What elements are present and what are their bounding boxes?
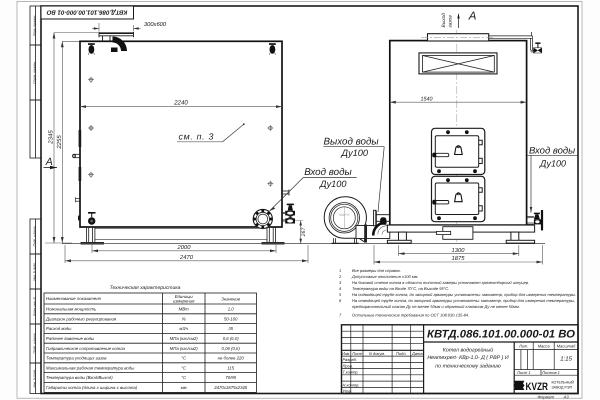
- svg-text:2000: 2000: [177, 244, 192, 251]
- svg-text:см. п. 3: см. п. 3: [179, 132, 215, 142]
- svg-text:А3: А3: [563, 395, 570, 400]
- svg-text:267: 267: [301, 227, 307, 238]
- svg-text:Допустимые отклонения ±100 мм: Допустимые отклонения ±100 мм.: [351, 274, 418, 279]
- svg-text:Лист 1: Лист 1: [516, 370, 531, 375]
- svg-text:Перв. примен.: Перв. примен.: [32, 15, 36, 36]
- svg-text:1875: 1875: [452, 255, 466, 262]
- svg-text:Взам. инв. N: Взам. инв. N: [32, 297, 36, 316]
- svg-text:35: 35: [228, 326, 233, 331]
- svg-text:Инв. N подл.: Инв. N подл.: [32, 369, 36, 388]
- svg-text:1: 1: [339, 268, 341, 273]
- svg-text:Вход воды: Вход воды: [304, 167, 352, 178]
- svg-text:Инв. N дубл.: Инв. N дубл.: [32, 262, 36, 281]
- svg-text:Листов 1: Листов 1: [541, 370, 560, 375]
- svg-text:Изм: Изм: [342, 351, 350, 356]
- svg-text:На боковой стенке котла в обла: На боковой стенке котла в области топочн…: [352, 280, 529, 285]
- svg-text:КВТД.086.101.00.000-01 ВО: КВТД.086.101.00.000-01 ВО: [427, 328, 575, 340]
- svg-text:А: А: [468, 11, 477, 23]
- svg-text:Лист: Лист: [351, 351, 363, 356]
- svg-text:Максимальная рабочая температу: Максимальная рабочая температура воды: [46, 365, 135, 370]
- svg-text:Остальные технические требован: Остальные технические требования по ОСТ …: [352, 313, 469, 318]
- svg-text:КВТД.086.101.00.000-01 ВО: КВТД.086.101.00.000-01 ВО: [46, 9, 127, 16]
- svg-text:Лит.: Лит.: [518, 344, 528, 349]
- svg-text:Выход воды: Выход воды: [324, 136, 380, 147]
- svg-text:измерения: измерения: [173, 299, 195, 304]
- svg-text:МВт: МВт: [179, 307, 189, 312]
- svg-text:2470х1875х2345: 2470х1875х2345: [213, 385, 248, 390]
- svg-text:Утв.: Утв.: [343, 388, 352, 393]
- svg-text:газов: газов: [448, 15, 453, 28]
- svg-text:Котел водогрейный: Котел водогрейный: [443, 347, 493, 353]
- svg-text:1540: 1540: [421, 97, 433, 103]
- svg-text:Номинальная мощность: Номинальная мощность: [46, 307, 97, 312]
- svg-text:Температура воды на Входе 70°: Температура воды на Входе 70°С, на Выход…: [352, 286, 449, 291]
- svg-text:Ду100: Ду100: [539, 159, 566, 169]
- svg-text:Рабочее давление воды: Рабочее давление воды: [46, 336, 95, 341]
- svg-text:Дата: Дата: [411, 351, 423, 356]
- svg-text:Ду100: Ду100: [341, 148, 369, 158]
- svg-text:ВЦ14-46: ВЦ14-46: [339, 214, 350, 217]
- svg-text:не более 220: не более 220: [218, 356, 245, 361]
- svg-text:по техническому заданию: по техническому заданию: [435, 364, 500, 370]
- svg-text:Т.контр.: Т.контр.: [343, 370, 359, 375]
- svg-text:Выход: Выход: [441, 13, 447, 28]
- svg-text:Пров.: Пров.: [343, 363, 354, 368]
- svg-text:50-100: 50-100: [224, 316, 238, 321]
- svg-text:2470: 2470: [179, 254, 194, 261]
- svg-text:Значение: Значение: [221, 297, 240, 302]
- svg-text:300х600: 300х600: [144, 21, 167, 28]
- svg-text:Справ. примен.: Справ. примен.: [32, 61, 36, 84]
- svg-text:Подп. и дата: Подп. и дата: [32, 333, 36, 353]
- svg-text:2255: 2255: [56, 135, 63, 150]
- svg-text:Гидравлическое сопротивление к: Гидравлическое сопротивление котла: [46, 346, 126, 351]
- svg-text:1300: 1300: [452, 247, 466, 254]
- svg-text:ЗАВОД РЭП: ЗАВОД РЭП: [552, 386, 573, 390]
- svg-text:Неатехреrt- КВр-1,0- Д ( РВР ): Неатехреrt- КВр-1,0- Д ( РВР ) И: [427, 355, 509, 361]
- svg-text:МПа (кгс/см2): МПа (кгс/см2): [170, 336, 199, 341]
- svg-text:Разраб.: Разраб.: [343, 357, 357, 362]
- svg-text:115: 115: [227, 365, 234, 370]
- svg-text:КОТЕЛЬНЫЙ: КОТЕЛЬНЫЙ: [552, 380, 575, 385]
- svg-text:Формат: Формат: [538, 395, 555, 400]
- svg-text:Расход воды: Расход воды: [46, 326, 72, 331]
- svg-text:2345: 2345: [48, 130, 55, 145]
- svg-text:Вход воды: Вход воды: [529, 146, 575, 157]
- svg-text:Ду100: Ду100: [319, 179, 347, 189]
- svg-text:KVZR: KVZR: [526, 381, 549, 393]
- svg-text:м3/ч: м3/ч: [179, 326, 189, 331]
- svg-text:N докум.: N докум.: [369, 351, 385, 356]
- svg-text:0,6 (6,0): 0,6 (6,0): [223, 336, 240, 341]
- svg-text:%: %: [182, 316, 186, 321]
- svg-text:Масштаб: Масштаб: [557, 344, 576, 349]
- svg-text:Масса: Масса: [538, 344, 551, 349]
- svg-text:1:15: 1:15: [560, 356, 572, 363]
- svg-text:Н.контр.: Н.контр.: [343, 382, 360, 387]
- svg-text:Диапазон рабочего регулировани: Диапазон рабочего регулирования: [45, 316, 117, 321]
- svg-text:Наименование показателя: Наименование показателя: [46, 296, 102, 301]
- svg-text:Габариты котла (длина х ширина: Габариты котла (длина х ширина х высота): [46, 385, 138, 390]
- svg-text:МПа (кгс/см2): МПа (кгс/см2): [170, 346, 199, 351]
- svg-text:70/95: 70/95: [225, 375, 236, 380]
- svg-text:Температура уходящих газов: Температура уходящих газов: [46, 356, 107, 361]
- svg-text:2240: 2240: [173, 100, 188, 107]
- svg-text:Подп.: Подп.: [396, 351, 407, 356]
- svg-text:мм: мм: [181, 385, 187, 390]
- svg-text:предохранительный клапан Ду н: предохранительный клапан Ду не менее 50м…: [352, 304, 520, 309]
- svg-text:1,0: 1,0: [228, 307, 235, 312]
- svg-text:0,06 (0,6): 0,06 (0,6): [221, 346, 240, 351]
- svg-text:На подводящей трубе котла, до: На подводящей трубе котла, до запорной а…: [352, 292, 576, 297]
- svg-text:На отводящей трубе котла, до з: На отводящей трубе котла, до запорной ар…: [352, 298, 575, 303]
- svg-text:Подп. и дата: Подп. и дата: [32, 226, 36, 246]
- svg-text:Техническая характеристика: Техническая характеристика: [110, 285, 181, 291]
- svg-text:Все размеры для справок.: Все размеры для справок.: [352, 268, 401, 273]
- svg-text:Температура воды (Вход/Выход): Температура воды (Вход/Выход): [46, 375, 113, 380]
